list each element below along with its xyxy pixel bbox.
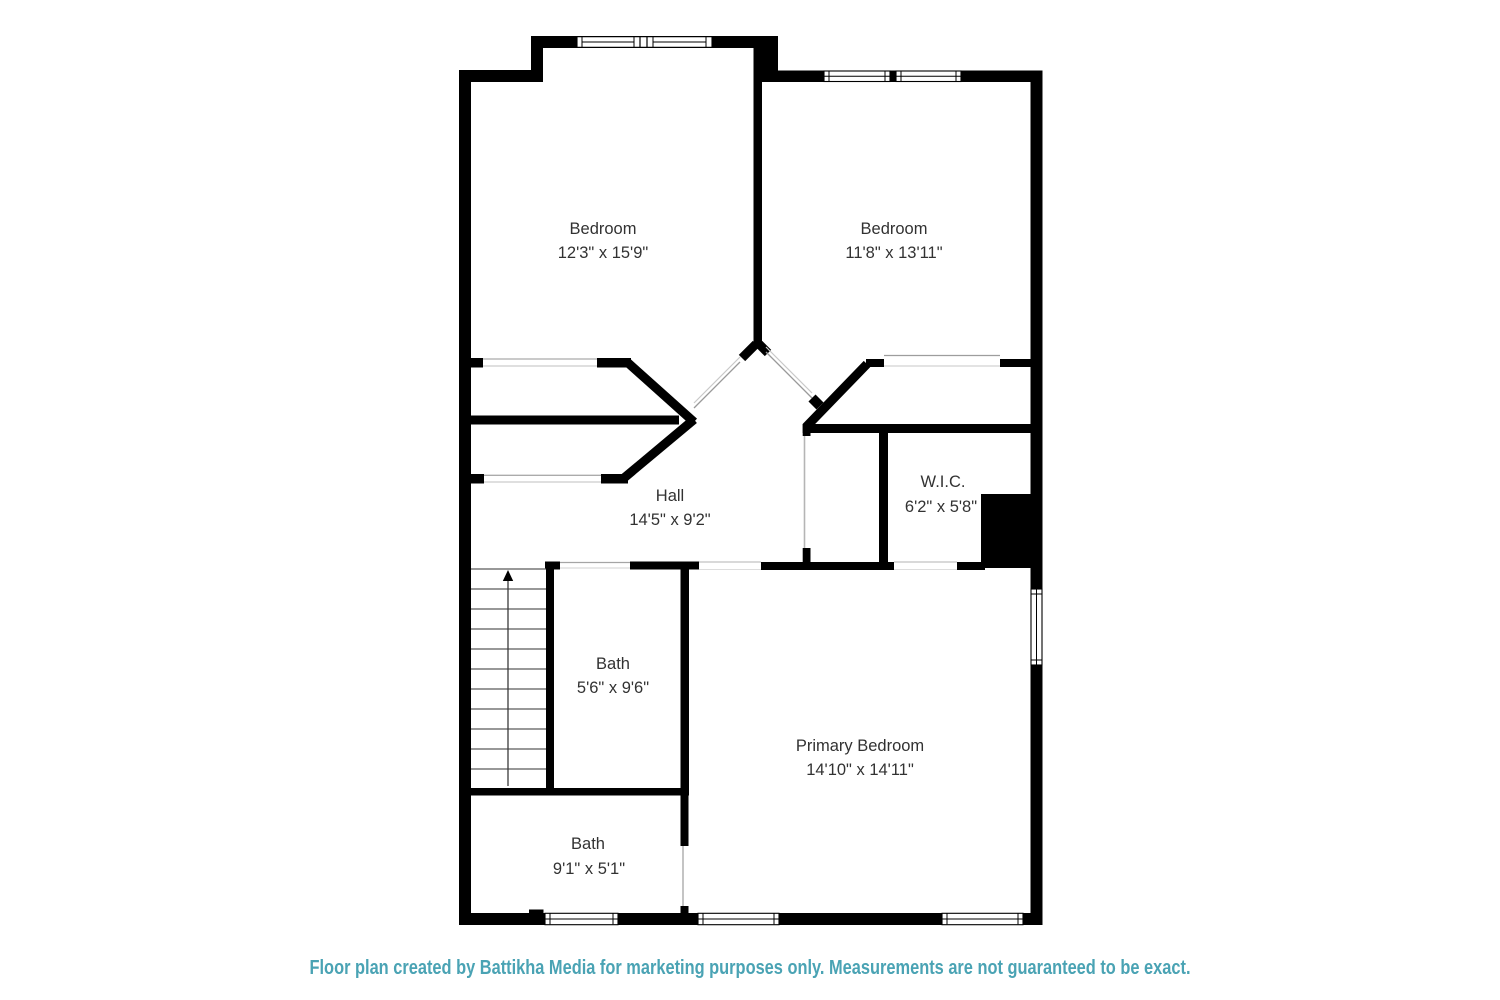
svg-text:Bath: Bath — [571, 835, 605, 853]
svg-text:Hall: Hall — [656, 487, 684, 505]
svg-text:14'10" x 14'11": 14'10" x 14'11" — [806, 761, 914, 779]
svg-text:12'3" x 15'9": 12'3" x 15'9" — [558, 244, 649, 262]
svg-text:9'1" x 5'1": 9'1" x 5'1" — [553, 860, 625, 878]
svg-text:Primary Bedroom: Primary Bedroom — [796, 737, 924, 755]
svg-text:5'6" x 9'6": 5'6" x 9'6" — [577, 679, 649, 697]
svg-text:11'8" x 13'11": 11'8" x 13'11" — [845, 244, 942, 262]
svg-text:Floor plan created by Battikha: Floor plan created by Battikha Media for… — [310, 957, 1191, 979]
svg-text:Bath: Bath — [596, 655, 630, 673]
svg-text:6'2" x 5'8": 6'2" x 5'8" — [905, 498, 977, 516]
svg-text:W.I.C.: W.I.C. — [921, 473, 966, 491]
svg-text:Bedroom: Bedroom — [570, 220, 637, 238]
svg-text:14'5" x 9'2": 14'5" x 9'2" — [629, 511, 710, 529]
svg-text:Bedroom: Bedroom — [861, 220, 928, 238]
